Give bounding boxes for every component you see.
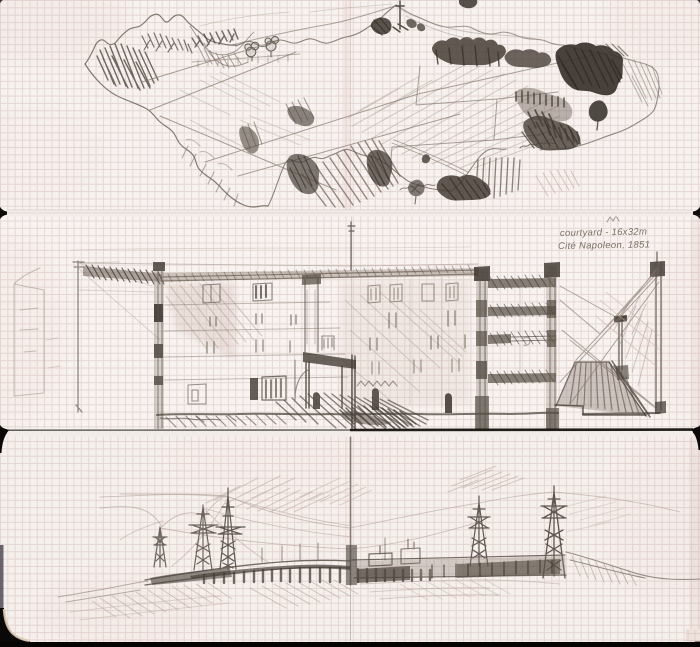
svg-text:courtyard - 16x32m: courtyard - 16x32m <box>560 226 647 239</box>
svg-text:Cité Napoleon, 1851: Cité Napoleon, 1851 <box>558 239 651 252</box>
